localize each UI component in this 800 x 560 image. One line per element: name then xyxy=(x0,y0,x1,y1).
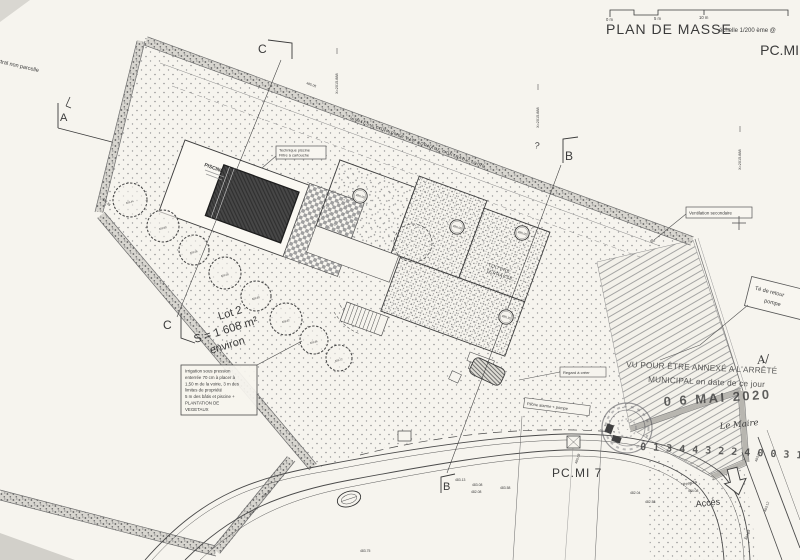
spot-level: 485.05 xyxy=(306,81,317,88)
spot-level: 483.12 xyxy=(763,501,770,512)
coordinate-label: X=2015.888 xyxy=(335,73,339,94)
irrigation-note: 5 m des bâtis et piscine + xyxy=(185,394,235,399)
section-b-top-label: B xyxy=(565,149,573,163)
irrigation-note: VEGETAUX xyxy=(185,407,209,412)
tree: 483.44 xyxy=(113,183,147,217)
question-mark: ? xyxy=(534,140,541,151)
coordinate-label: X=2015.888 xyxy=(738,149,742,170)
corner-note: cadastral non parcelle xyxy=(0,56,39,74)
plan-title: PLAN DE MASSE xyxy=(606,21,732,37)
pool-tech-note: Filtre à cartouche xyxy=(279,153,309,158)
spot-level: 483.58 xyxy=(500,486,510,490)
sheet-code: PC.MI xyxy=(760,42,799,58)
spot-level: 483.75 xyxy=(360,549,370,553)
scale-note: échelle 1/200 ème @ xyxy=(719,28,776,34)
sheet-watermark: PC.MI 7 xyxy=(552,466,602,480)
spot-level: 482.04 xyxy=(630,491,640,495)
irrigation-note: PLANTATION DE xyxy=(185,401,219,406)
tree: 483.72 xyxy=(326,345,352,371)
spot-level: 482.58 xyxy=(645,500,655,504)
scale-bar-10: 10 m xyxy=(699,15,709,20)
tree: 483.60 xyxy=(241,281,271,311)
section-b-bottom-label: B xyxy=(443,481,450,493)
irrigation-note: enterrée 70 cm à placer à xyxy=(185,375,236,380)
tree: 483.62 xyxy=(270,303,302,335)
scan-artifacts xyxy=(0,0,75,560)
manhole xyxy=(335,488,362,510)
inspection-chamber-note: Regard à créer xyxy=(563,370,590,375)
level-marker: 486.00 xyxy=(450,220,464,234)
coordinate-label: X=2015.888 xyxy=(536,107,540,128)
level-marker: 485.35 xyxy=(499,310,513,324)
level-marker: 486.00 xyxy=(353,189,367,203)
spot-level: 482.08 xyxy=(471,490,481,494)
section-c-bottom-label: C xyxy=(163,318,172,332)
site-plan-sheet: 483.44 483.50 483.56 483.58 483.60 483.6… xyxy=(0,0,800,560)
irrigation-note: limites de propriété xyxy=(185,388,223,393)
stamp-handwritten-mark: A/ xyxy=(755,352,771,367)
tree: 483.66 xyxy=(300,326,328,354)
section-a-label: A xyxy=(60,112,68,124)
irrigation-note: 1,50 m de la voirie, 3 m des xyxy=(185,381,240,386)
spot-level: 485.08 xyxy=(574,453,581,464)
spot-level: 483.08 xyxy=(472,483,482,487)
tree: 483.50 xyxy=(147,210,179,242)
spot-level: 484.08 xyxy=(688,489,698,493)
irrigation-note: Irrigation sous pression xyxy=(185,369,231,374)
tree: 483.58 xyxy=(209,257,241,289)
spot-level: 483.13 xyxy=(455,478,465,482)
site-plan-drawing: 483.44 483.50 483.56 483.58 483.60 483.6… xyxy=(0,0,800,560)
section-c-top-label: C xyxy=(258,42,267,56)
tree: 483.56 xyxy=(179,235,209,265)
ventilation-note: Ventilation secondaire xyxy=(689,211,733,216)
level-marker: 485.05 xyxy=(515,226,529,240)
